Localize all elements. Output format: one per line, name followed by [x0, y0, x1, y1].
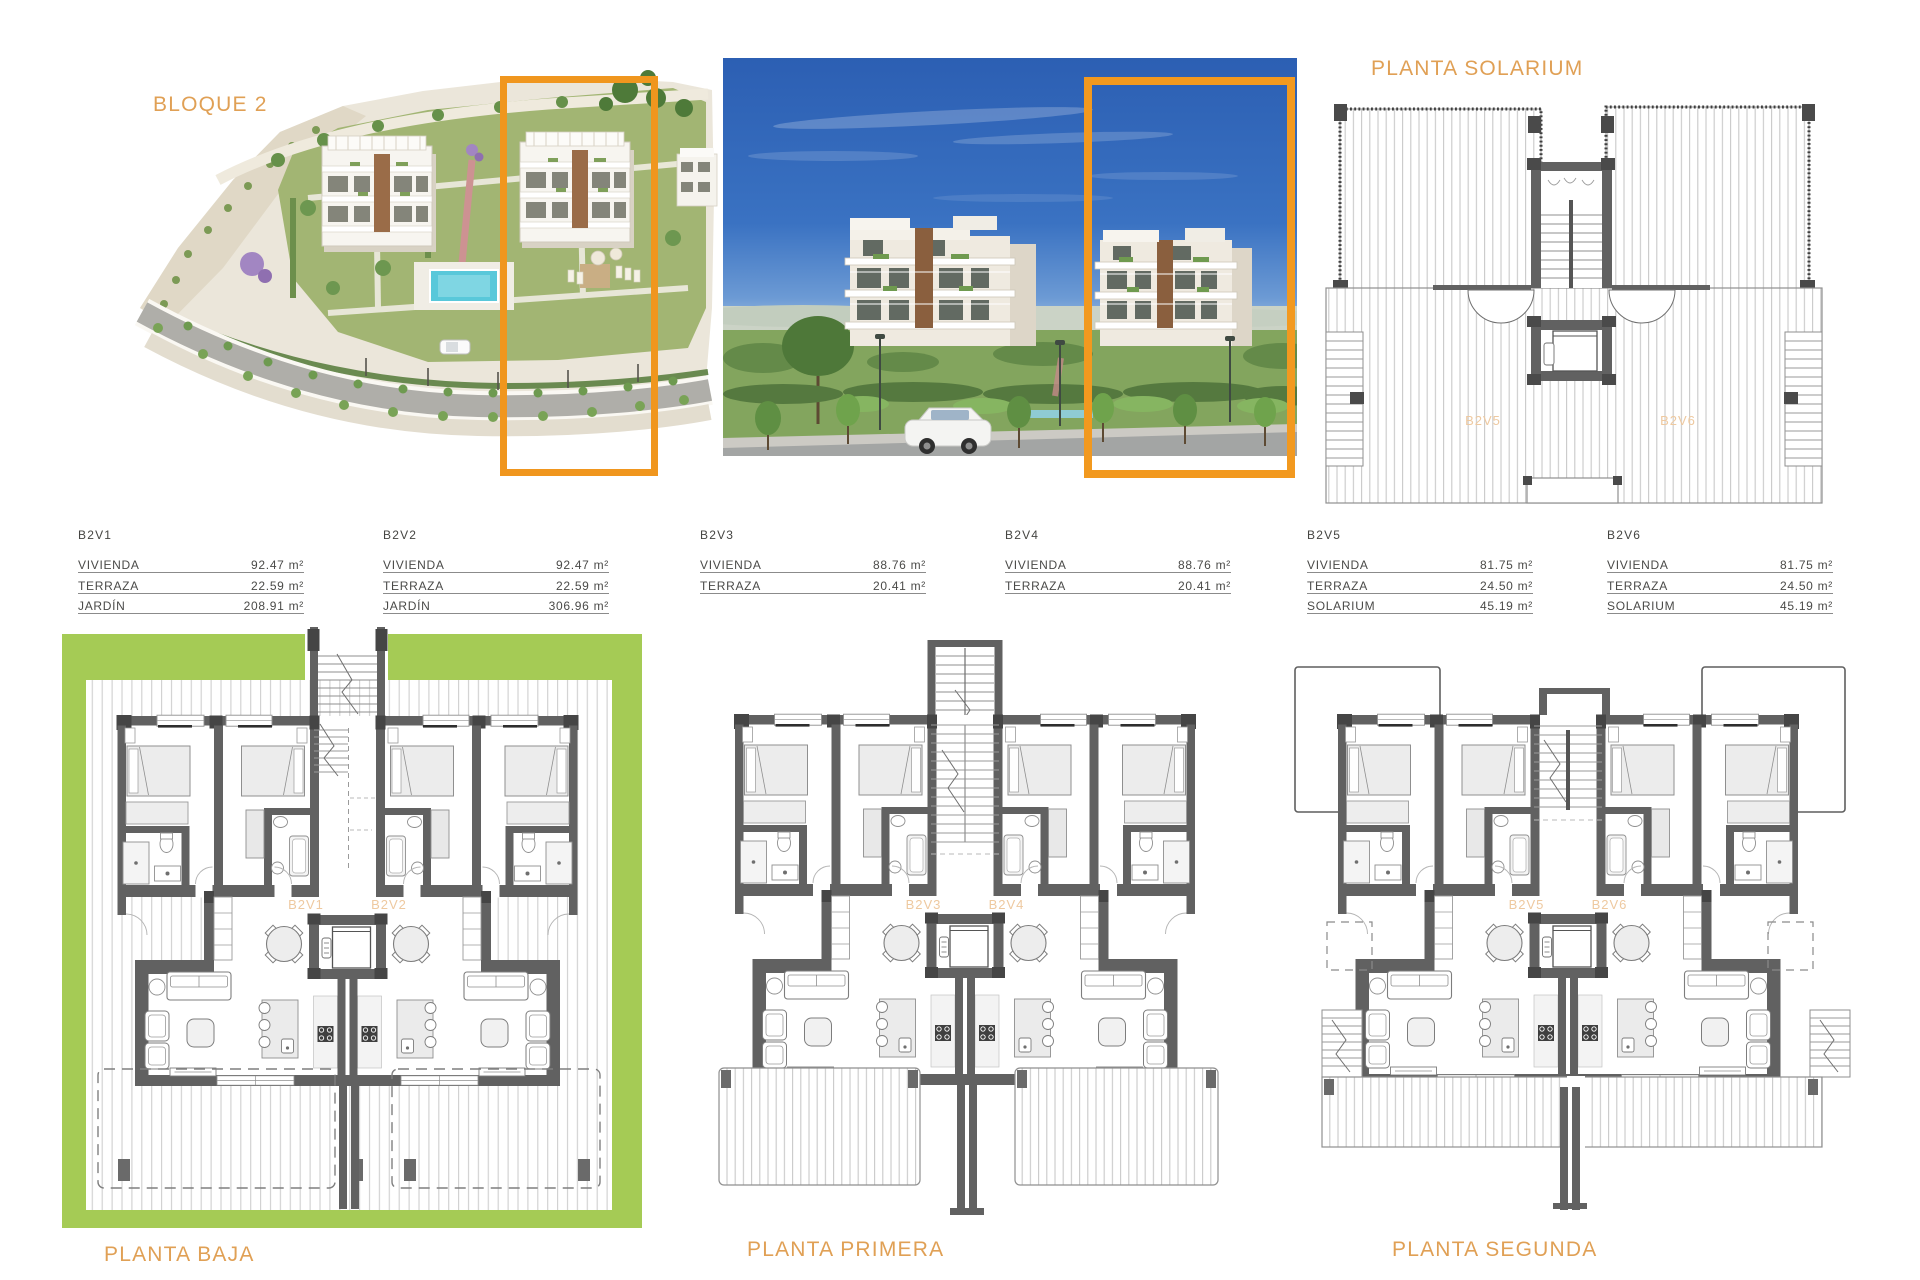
- svg-text:B2V6: B2V6: [1660, 413, 1696, 428]
- svg-text:B2V5: B2V5: [1509, 897, 1545, 912]
- svg-text:B2V6: B2V6: [1592, 897, 1628, 912]
- svg-text:B2V1: B2V1: [288, 897, 324, 912]
- svg-text:B2V2: B2V2: [371, 897, 407, 912]
- svg-text:B2V5: B2V5: [1465, 413, 1501, 428]
- svg-text:B2V4: B2V4: [989, 897, 1025, 912]
- svg-text:B2V3: B2V3: [906, 897, 942, 912]
